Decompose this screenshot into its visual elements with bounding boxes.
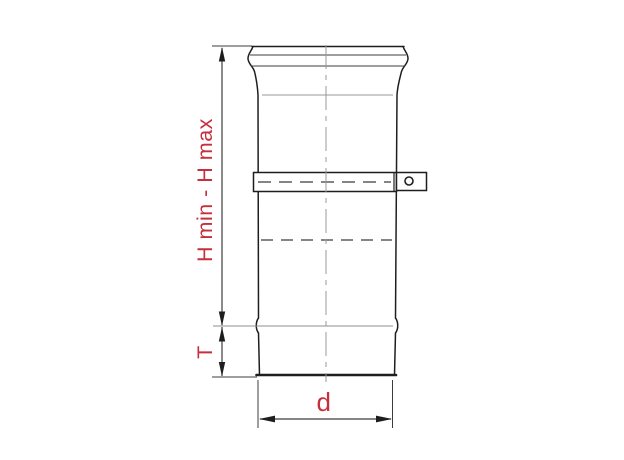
dimension-height: H min - H max bbox=[193, 46, 252, 326]
socket-bead-lines bbox=[250, 55, 406, 95]
t-arrow-down bbox=[219, 362, 225, 377]
clamp-bolt-hole bbox=[405, 177, 413, 185]
clamp-band bbox=[254, 173, 427, 192]
t-arrow-up bbox=[219, 327, 225, 342]
d-arrow-left bbox=[259, 416, 275, 423]
h-arrow-up bbox=[219, 47, 225, 62]
d-dimension-label: d bbox=[317, 387, 332, 417]
pipe-right-edge bbox=[395, 47, 409, 376]
h-dimension-label: H min - H max bbox=[193, 118, 217, 262]
t-dimension-label: T bbox=[193, 345, 217, 359]
h-arrow-down bbox=[219, 312, 225, 327]
d-arrow-right bbox=[376, 416, 392, 423]
dimension-t: T bbox=[193, 327, 257, 377]
pipe-dimension-diagram: H min - H max T d bbox=[0, 0, 624, 460]
dimension-diameter: d bbox=[258, 380, 393, 428]
technical-drawing: H min - H max T d bbox=[0, 0, 624, 460]
